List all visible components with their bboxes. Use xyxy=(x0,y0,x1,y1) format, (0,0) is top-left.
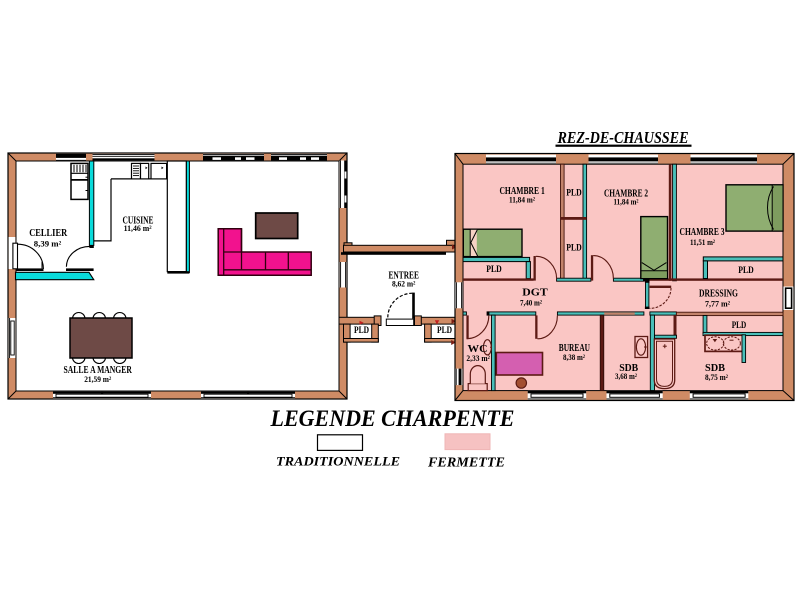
svg-text:CELLIER: CELLIER xyxy=(29,228,68,239)
svg-text:PLD: PLD xyxy=(486,265,502,275)
svg-text:PLD: PLD xyxy=(354,326,369,336)
svg-text:11,84 m²: 11,84 m² xyxy=(509,195,535,204)
svg-text:DGT: DGT xyxy=(522,288,548,299)
svg-text:11,51 m²: 11,51 m² xyxy=(690,238,715,247)
svg-text:11,46 m²: 11,46 m² xyxy=(124,224,152,233)
svg-text:TRADITIONNELLE: TRADITIONNELLE xyxy=(276,454,400,468)
svg-text:CHAMBRE 3: CHAMBRE 3 xyxy=(680,227,725,238)
svg-text:2,33 m²: 2,33 m² xyxy=(466,354,490,363)
svg-text:PLD: PLD xyxy=(566,244,582,254)
svg-text:DRESSING: DRESSING xyxy=(699,289,738,300)
svg-text:7,77 m²: 7,77 m² xyxy=(705,300,730,309)
svg-text:FERMETTE: FERMETTE xyxy=(427,454,505,469)
svg-text:8,75 m²: 8,75 m² xyxy=(705,373,728,382)
svg-text:PLD: PLD xyxy=(566,188,582,198)
svg-text:LEGENDE CHARPENTE: LEGENDE CHARPENTE xyxy=(270,406,515,431)
svg-text:PLD: PLD xyxy=(738,266,754,276)
svg-text:8,38 m²: 8,38 m² xyxy=(563,353,585,362)
svg-text:8,39 m²: 8,39 m² xyxy=(34,240,62,249)
svg-text:PLD: PLD xyxy=(437,326,452,336)
svg-text:21,59 m²: 21,59 m² xyxy=(84,375,111,384)
svg-text:7,40 m²: 7,40 m² xyxy=(520,299,542,308)
svg-text:8,62 m²: 8,62 m² xyxy=(392,280,416,289)
svg-text:REZ-DE-CHAUSSEE: REZ-DE-CHAUSSEE xyxy=(557,128,689,147)
svg-text:11,84 m²: 11,84 m² xyxy=(614,197,639,206)
svg-text:3,68 m²: 3,68 m² xyxy=(615,372,637,381)
svg-text:PLD: PLD xyxy=(732,321,747,331)
